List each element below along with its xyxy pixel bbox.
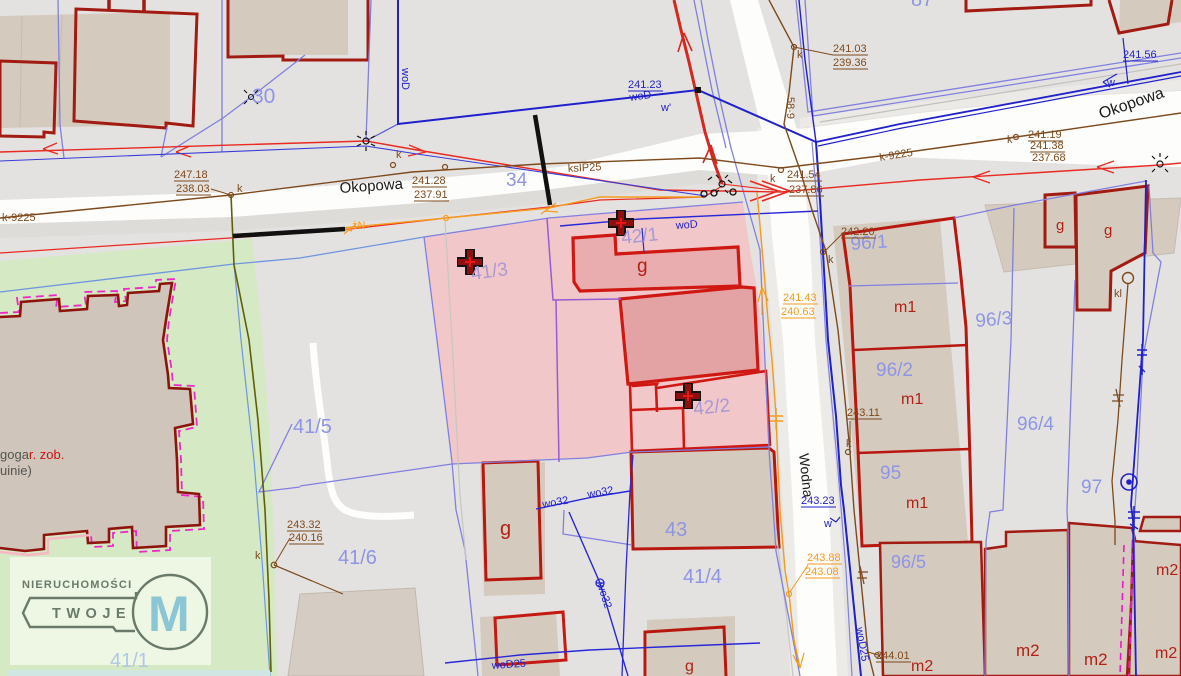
- svg-text:95: 95: [880, 463, 901, 484]
- svg-text:kl: kl: [1114, 288, 1122, 300]
- svg-text:k: k: [255, 550, 261, 562]
- svg-text:58-9: 58-9: [784, 97, 796, 119]
- svg-text:g: g: [637, 256, 648, 277]
- svg-text:woD25: woD25: [490, 658, 526, 672]
- svg-text:96/2: 96/2: [876, 360, 913, 381]
- svg-text:240.63: 240.63: [781, 306, 815, 318]
- svg-text:239.36: 239.36: [833, 57, 867, 69]
- svg-text:41/4: 41/4: [683, 566, 722, 588]
- svg-text:43: 43: [665, 519, 687, 541]
- svg-text:w': w': [660, 102, 671, 114]
- svg-text:42/1: 42/1: [620, 224, 659, 249]
- svg-text:k: k: [1007, 134, 1013, 146]
- svg-text:k: k: [396, 149, 402, 161]
- svg-text:m1: m1: [894, 299, 916, 316]
- svg-text:m2: m2: [1156, 562, 1178, 579]
- svg-text:g: g: [685, 658, 694, 675]
- svg-text:240.16: 240.16: [289, 532, 323, 544]
- svg-text:96/3: 96/3: [975, 308, 1014, 332]
- svg-text:237.91: 237.91: [414, 189, 448, 201]
- svg-text:k: k: [237, 183, 243, 195]
- svg-text:241.54: 241.54: [787, 169, 821, 181]
- svg-text:k: k: [828, 254, 834, 266]
- svg-text:gogar. zob.: gogar. zob.: [0, 447, 64, 462]
- svg-text:96/5: 96/5: [891, 552, 926, 572]
- svg-text:m2: m2: [911, 658, 933, 675]
- svg-text:żN: żN: [352, 220, 366, 232]
- svg-text:30: 30: [252, 85, 275, 108]
- svg-text:242.20: 242.20: [841, 226, 875, 238]
- svg-text:247.18: 247.18: [174, 169, 208, 181]
- svg-text:241.28: 241.28: [412, 175, 446, 187]
- svg-text:243.32: 243.32: [287, 519, 321, 531]
- svg-text:NIERUCHOMOŚCI: NIERUCHOMOŚCI: [22, 578, 132, 591]
- svg-text:M: M: [148, 586, 190, 642]
- svg-text:42/2: 42/2: [692, 395, 731, 420]
- svg-text:w: w: [823, 518, 832, 530]
- svg-text:woD: woD: [399, 67, 411, 90]
- svg-text:243.88: 243.88: [807, 552, 841, 564]
- svg-text:m2: m2: [1084, 650, 1108, 669]
- svg-text:243.08: 243.08: [805, 566, 839, 578]
- svg-text:241.38: 241.38: [1030, 140, 1064, 152]
- svg-text:237.68: 237.68: [1032, 152, 1066, 164]
- svg-text:m1: m1: [906, 495, 928, 512]
- svg-text:241.43: 241.43: [783, 292, 817, 304]
- svg-text:TWOJE: TWOJE: [52, 606, 131, 622]
- svg-text:w: w: [1106, 77, 1115, 89]
- svg-text:m2: m2: [1155, 645, 1177, 662]
- svg-text:237.86: 237.86: [789, 184, 823, 196]
- svg-text:41/5: 41/5: [293, 416, 332, 438]
- svg-text:41/1: 41/1: [110, 650, 149, 672]
- svg-text:k: k: [770, 173, 776, 185]
- svg-text:243.11: 243.11: [847, 407, 880, 419]
- svg-text:ksIP25: ksIP25: [568, 161, 602, 175]
- svg-text:k: k: [846, 438, 852, 450]
- svg-text:241.56: 241.56: [1123, 49, 1157, 61]
- svg-text:243.23: 243.23: [801, 495, 835, 507]
- svg-text:g: g: [1104, 222, 1112, 239]
- svg-text:87: 87: [911, 0, 933, 11]
- svg-text:k: k: [797, 49, 803, 61]
- svg-text:96/4: 96/4: [1017, 414, 1054, 435]
- svg-text:woD: woD: [674, 218, 698, 232]
- svg-text:uinie): uinie): [0, 463, 32, 478]
- svg-text:m2: m2: [1016, 641, 1040, 660]
- svg-text:244.01: 244.01: [876, 650, 910, 662]
- svg-text:g: g: [500, 518, 511, 540]
- svg-text:41/6: 41/6: [338, 547, 377, 569]
- svg-text:97: 97: [1081, 477, 1102, 498]
- svg-text:238.03: 238.03: [176, 183, 210, 195]
- svg-text:g: g: [1056, 217, 1064, 234]
- svg-text:241.03: 241.03: [833, 43, 867, 55]
- svg-text:k-9225: k-9225: [2, 212, 36, 224]
- svg-text:34: 34: [506, 170, 528, 191]
- svg-text:m1: m1: [901, 391, 923, 408]
